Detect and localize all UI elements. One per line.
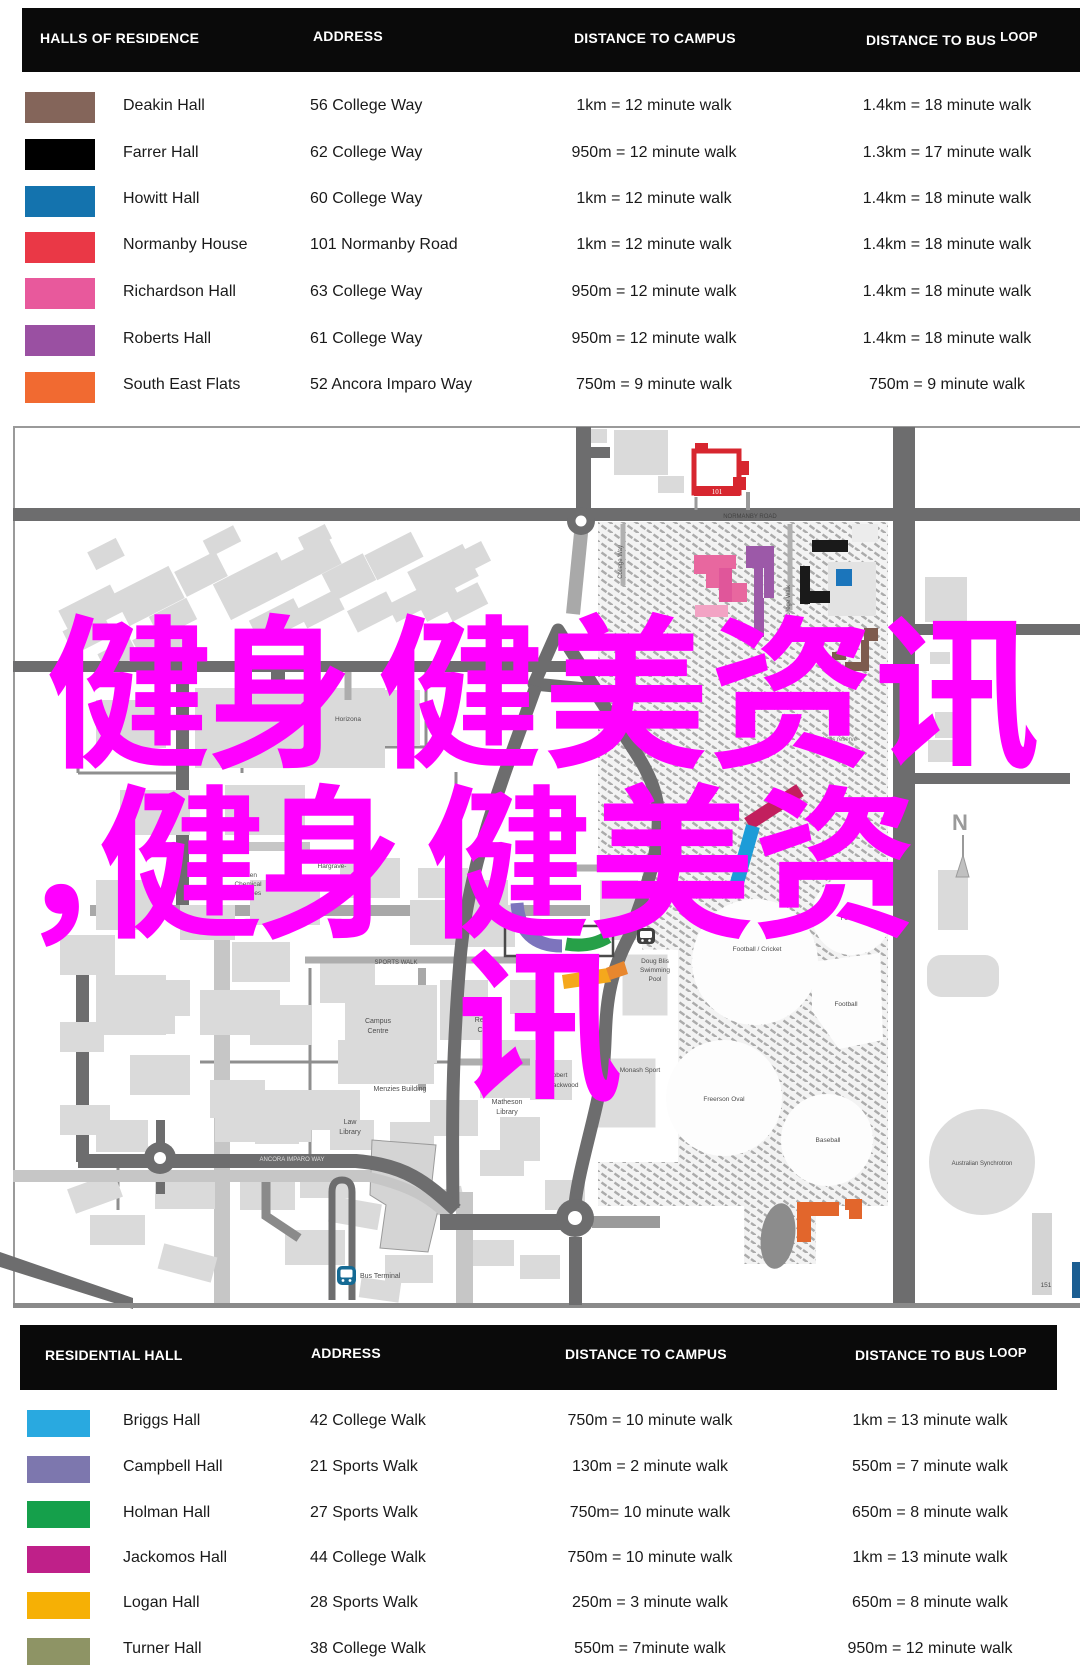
svg-text:Australian Synchrotron: Australian Synchrotron	[952, 1161, 1013, 1167]
svg-text:Bus Terminal: Bus Terminal	[360, 1273, 401, 1280]
svg-text:N: N	[952, 810, 968, 835]
svg-text:College Way: College Way	[618, 545, 624, 579]
svg-text:Freerson Oval: Freerson Oval	[703, 1096, 745, 1103]
svg-text:Monash Sport: Monash Sport	[620, 1067, 661, 1074]
svg-text:SPORTS WALK: SPORTS WALK	[374, 960, 417, 966]
svg-text:Menzies Building: Menzies Building	[374, 1086, 427, 1093]
svg-text:NORMANBY ROAD: NORMANBY ROAD	[723, 514, 777, 520]
svg-text:ANCORA IMPARO WAY: ANCORA IMPARO WAY	[260, 1157, 325, 1163]
svg-text:Football / Cricket: Football / Cricket	[733, 946, 782, 953]
svg-text:151: 151	[1041, 1282, 1052, 1289]
svg-text:101: 101	[712, 488, 723, 496]
svg-text:Football: Football	[834, 1001, 858, 1008]
svg-text:Baseball: Baseball	[816, 1137, 841, 1144]
svg-text:Horizona: Horizona	[335, 716, 361, 723]
svg-text:Hargrave-: Hargrave-	[318, 863, 347, 870]
